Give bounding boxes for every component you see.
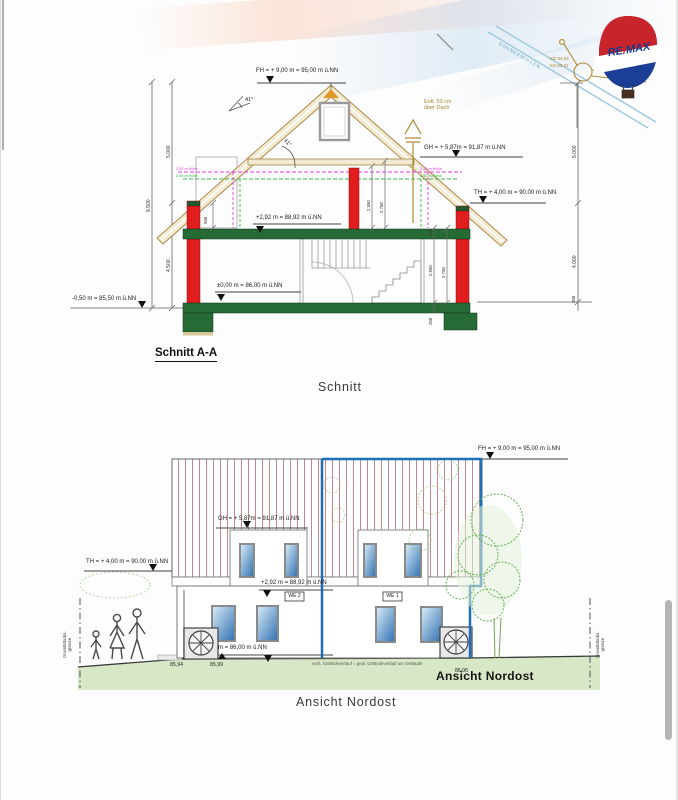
logo-re: RE xyxy=(607,45,624,59)
dim-lower: 4.500 xyxy=(167,259,173,272)
ground-note: vorh. Geländeverlauf = gepl. Geländeverl… xyxy=(312,662,422,667)
dim-eg-clear: 2.550 xyxy=(429,265,434,276)
plan-document-page: FH = + 9,00 m = 95,00 m ü.NN GH = + 5,87… xyxy=(0,0,678,800)
gable-window xyxy=(320,103,349,140)
dim-slab: 250 xyxy=(429,318,434,325)
dim-lines-left xyxy=(149,79,175,311)
clearance-green-right: 2,00 m Höhe xyxy=(420,174,442,178)
stray-mark xyxy=(437,34,453,50)
ks-label: KS 82.31 xyxy=(550,64,569,69)
dim-attic-top: 2.750 xyxy=(380,202,385,213)
elevation-eg-label: m = 86,00 m ü.NN xyxy=(218,645,267,652)
people-figures xyxy=(91,609,145,659)
section-caption: Schnitt xyxy=(318,381,362,395)
dim-knee: 960 xyxy=(204,217,209,224)
dim-attic-clear: 2.550 xyxy=(367,200,372,211)
dim-total-height: 9.500 xyxy=(147,199,153,212)
elevation-grass-title: Ansicht Nordost xyxy=(436,670,534,683)
spot-level-1: 85,94 xyxy=(170,663,183,669)
clearance-magenta-right: 2,30 m Höhe xyxy=(420,167,442,171)
dim-lines-right xyxy=(560,80,583,311)
boundary-label-right: Grundstücks- grenze xyxy=(596,631,606,658)
section-gh-label: GH = + 5,87m = 91,87 m ü.NN xyxy=(424,145,506,152)
boundary-label-left: Grundstücks- grenze xyxy=(63,631,73,658)
clearance-green-left: 2,00 m Höhe xyxy=(176,174,198,178)
section-th-label: TH = + 4,00 m = 90,00 m ü.NN xyxy=(474,190,556,197)
balloon-basket xyxy=(622,90,634,98)
elevation-og-label: +2,92 m = 88,92 m ü.NN xyxy=(261,580,327,587)
elevation-drawing xyxy=(78,452,600,690)
scrollbar-thumb[interactable] xyxy=(665,600,672,740)
heat-pump-left xyxy=(184,628,218,659)
spot-level-2: 85,99 xyxy=(210,663,223,669)
section-fh-label: FH = + 9,00 m = 95,00 m ü.NN xyxy=(256,68,338,75)
dim-right-upper: 5.000 xyxy=(573,145,579,158)
dim-eg-sill: 220 xyxy=(429,229,434,236)
section-og-label: +2,92 m = 88,92 m ü.NN xyxy=(256,215,322,222)
vent-note: Entl. 50 cm über Dach xyxy=(424,99,452,111)
section-eg-label: ±0,00 m = 86,00 m ü.NN xyxy=(217,283,283,290)
section-base-label: -0,50 m = 85,50 m ü.NN xyxy=(72,296,136,303)
elevation-fh-label: FH = + 9,00 m = 95,00 m ü.NN xyxy=(478,446,560,453)
elevation-gh-label: GH = + 5,87m = 91,87 m ü.NN xyxy=(218,516,300,523)
staircase xyxy=(300,239,424,303)
dim-right-lower: 4.000 xyxy=(573,255,579,268)
clearance-magenta-left: 2,30 m Höhe xyxy=(176,167,198,171)
level-markers-section xyxy=(215,83,546,292)
kd-label: KD 84.04 xyxy=(550,57,569,62)
elevation-th-label: TH = + 4,00 m = 90,00 m ü.NN xyxy=(86,559,168,566)
bush-left xyxy=(80,572,150,598)
unit-label-we1: WE 1 xyxy=(383,594,402,600)
dim-right-base: 200 xyxy=(572,296,577,303)
dim-eg-top: 2.750 xyxy=(442,267,447,278)
drawing-canvas xyxy=(0,0,678,800)
elevation-caption: Ansicht Nordost xyxy=(296,696,396,710)
unit-label-we2: WE 2 xyxy=(285,594,304,600)
roof-angle-label: 41° xyxy=(245,97,253,103)
heat-pump-right xyxy=(440,627,472,658)
dim-upper: 5.000 xyxy=(167,145,173,158)
section-title: Schnitt A-A xyxy=(155,347,217,362)
